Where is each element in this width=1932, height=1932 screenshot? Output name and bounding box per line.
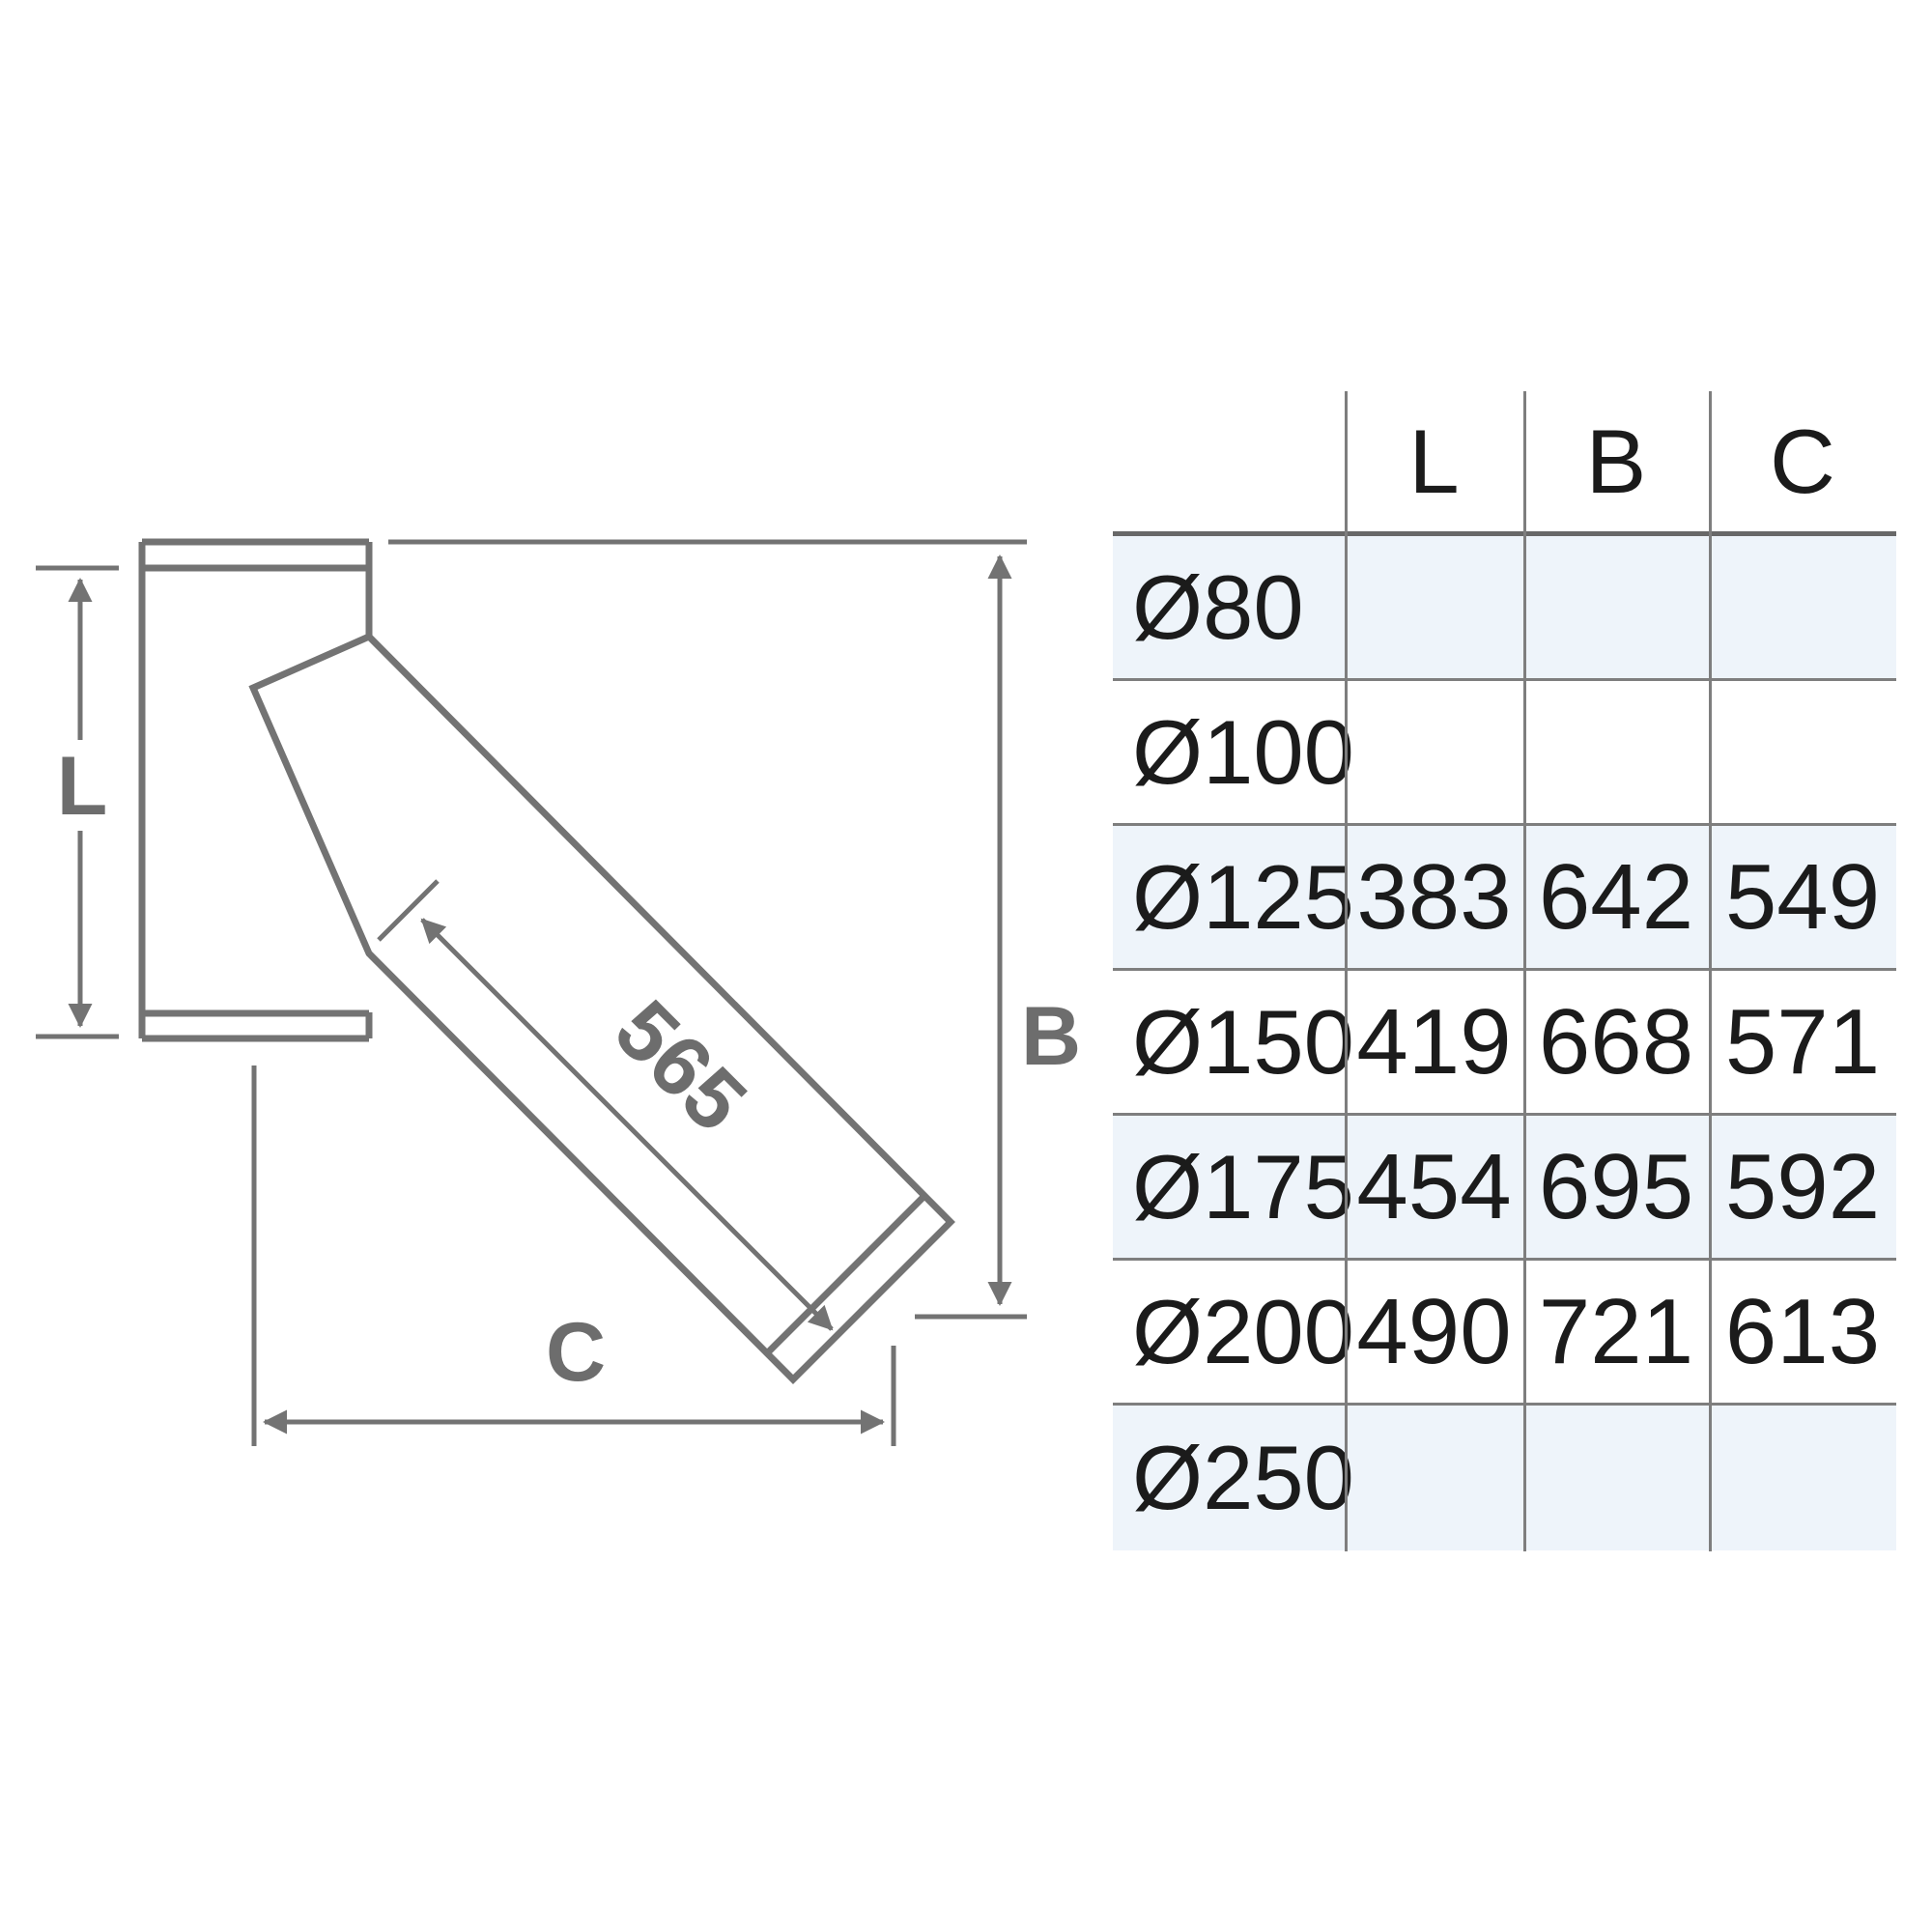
table-header-row: L B C [1113, 391, 1896, 536]
value-C: 613 [1709, 1262, 1896, 1403]
table-header-B: B [1523, 391, 1709, 532]
table-row: Ø150 419 668 571 [1113, 971, 1896, 1116]
value-L: 490 [1345, 1262, 1523, 1403]
dimension-table: L B C Ø80 Ø100 Ø125 383 642 549 Ø150 419… [1113, 391, 1896, 1551]
value-B: 695 [1523, 1117, 1709, 1258]
value-B: 721 [1523, 1262, 1709, 1403]
dimension-565-tick [379, 881, 438, 940]
dimension-565: 565 [379, 881, 832, 1329]
diameter-label: Ø125 [1113, 827, 1345, 968]
vertical-pipe-collar-lines [142, 568, 369, 1013]
diameter-label: Ø150 [1113, 972, 1345, 1113]
diameter-label: Ø250 [1113, 1407, 1345, 1548]
dimension-B-label: B [1021, 990, 1081, 1083]
dimension-C-label: C [546, 1306, 606, 1399]
table-column-line [1345, 391, 1348, 1551]
table-row: Ø175 454 695 592 [1113, 1116, 1896, 1261]
dimension-B: B [388, 542, 1081, 1317]
value-C: 592 [1709, 1117, 1896, 1258]
dimension-L-label: L [57, 740, 108, 833]
value-L: 454 [1345, 1117, 1523, 1258]
table-header-L: L [1345, 391, 1523, 532]
value-B: 642 [1523, 827, 1709, 968]
table-column-line [1523, 391, 1526, 1551]
table-column-line [1709, 391, 1712, 1551]
value-C: 549 [1709, 827, 1896, 968]
page: L B C 565 L B C Ø80 [0, 0, 1932, 1932]
value-L: 383 [1345, 827, 1523, 968]
table-row: Ø250 [1113, 1406, 1896, 1550]
table-row: Ø200 490 721 613 [1113, 1261, 1896, 1406]
diameter-label: Ø80 [1113, 537, 1345, 678]
diameter-label: Ø200 [1113, 1262, 1345, 1403]
table-header-C: C [1709, 391, 1896, 532]
dimension-565-arrow-line [422, 920, 832, 1329]
table-row: Ø125 383 642 549 [1113, 826, 1896, 971]
table-row: Ø80 [1113, 536, 1896, 681]
diameter-label: Ø175 [1113, 1117, 1345, 1258]
branch-pipe-outline [253, 637, 951, 1379]
value-B: 668 [1523, 972, 1709, 1113]
table-row: Ø100 [1113, 681, 1896, 826]
table-body: Ø80 Ø100 Ø125 383 642 549 Ø150 419 668 5… [1113, 536, 1896, 1550]
value-C: 571 [1709, 972, 1896, 1113]
dimension-L: L [36, 568, 119, 1037]
vertical-pipe-outline [142, 542, 369, 1038]
diameter-label: Ø100 [1113, 682, 1345, 823]
dimension-C: C [254, 1065, 894, 1446]
value-L: 419 [1345, 972, 1523, 1113]
